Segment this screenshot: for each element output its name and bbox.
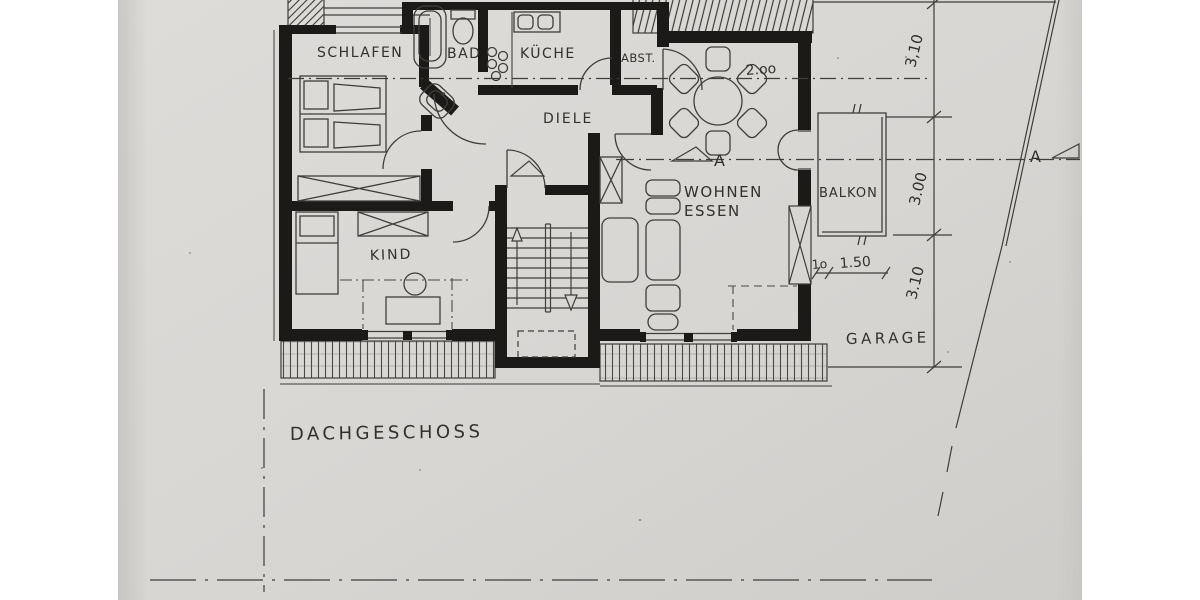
site-label-garage: GARAGE [846, 329, 930, 348]
room-label-essen: ESSEN [684, 202, 741, 220]
window-wohnen-east [789, 206, 811, 284]
floor-plan-photo: SCHLAFEN BAD KÜCHE ABST. DIELE WOHNEN ES… [0, 0, 1200, 600]
dim-label-200: 2.oo [745, 61, 777, 79]
floor-plan-drawing: SCHLAFEN BAD KÜCHE ABST. DIELE WOHNEN ES… [0, 0, 1200, 600]
room-label-kind: KIND [370, 247, 413, 264]
room-label-bad: BAD [447, 46, 481, 62]
room-label-kueche: KÜCHE [520, 44, 576, 62]
dim-label-10: 1o [811, 256, 828, 272]
floor-title: DACHGESCHOSS [290, 421, 484, 445]
room-label-abst: ABST. [621, 51, 656, 65]
room-label-wohnen: WOHNEN [684, 183, 763, 201]
chimney-block [288, 0, 324, 26]
room-label-balkon: BALKON [819, 186, 878, 201]
section-mark-a-left: A [714, 151, 725, 170]
room-label-schlafen: SCHLAFEN [317, 45, 403, 61]
dim-label-150: 1.50 [839, 254, 871, 272]
eaves-hatch-bottom-left [281, 341, 495, 378]
room-label-diele: DIELE [543, 111, 593, 127]
eaves-hatch-bottom-right [600, 344, 827, 381]
section-mark-a-right: A [1030, 147, 1041, 166]
